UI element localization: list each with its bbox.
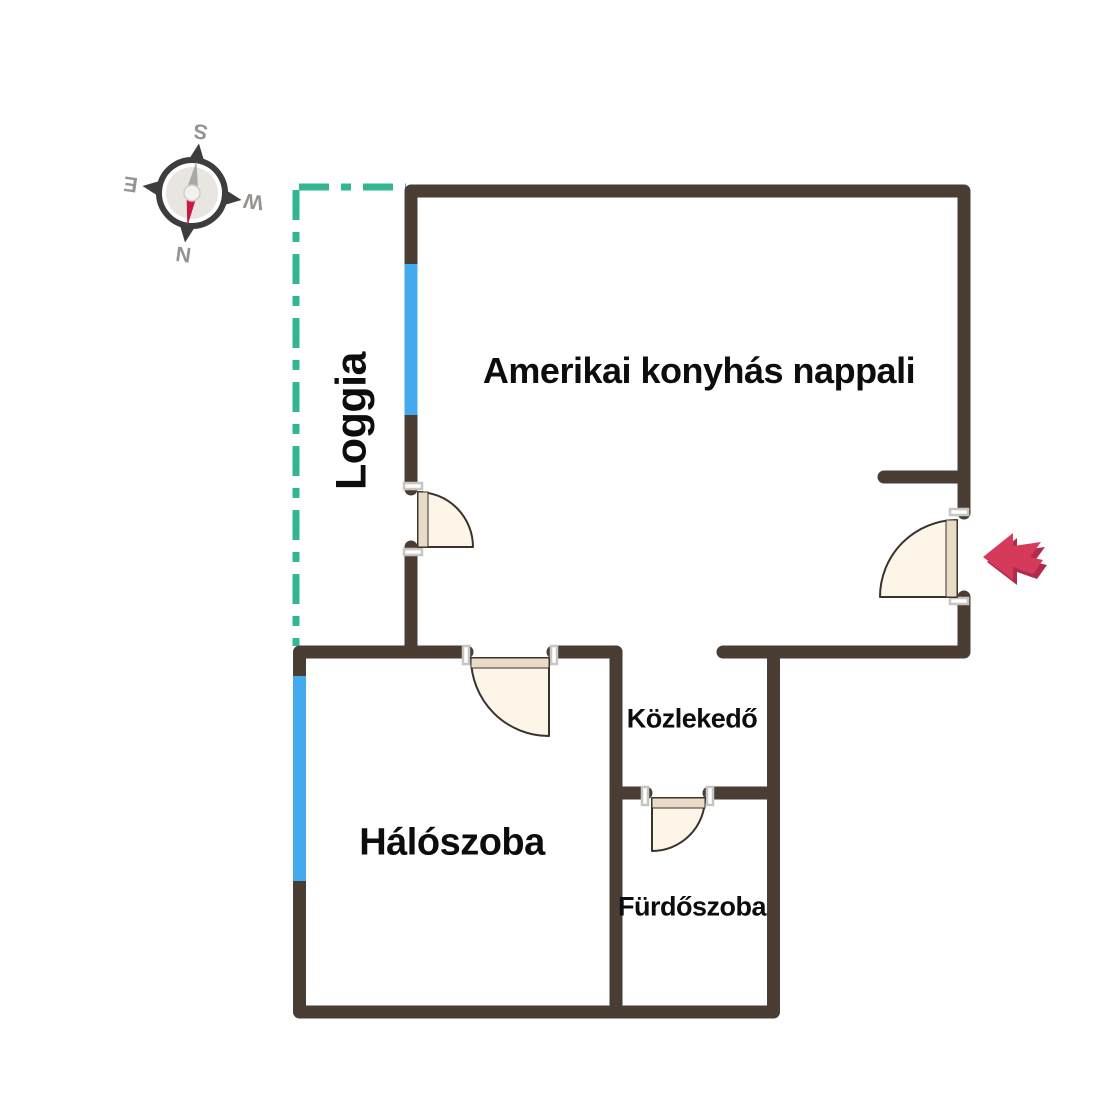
entrance-door xyxy=(880,520,957,597)
bedroom-top-wall-left xyxy=(300,652,468,678)
floor-plan: S W N E Amerikai konyhás nappali Loggia … xyxy=(0,0,1120,1100)
bathroom-door-leaf xyxy=(652,798,705,808)
loggia-door-jamb-top xyxy=(404,483,422,489)
door-jambs xyxy=(404,483,968,805)
loggia-door xyxy=(418,492,473,547)
compass-letter-s: S xyxy=(192,119,209,144)
bedroom-door-jamb-left xyxy=(463,646,469,664)
bathroom-door-jamb-right xyxy=(707,787,713,805)
loggia-door-leaf xyxy=(418,492,428,547)
bedroom-door-swing xyxy=(471,658,549,736)
bedroom-door-jamb-right xyxy=(551,646,557,664)
loggia-door-jamb-bottom xyxy=(404,549,422,555)
room-label-hall: Közlekedő xyxy=(627,704,758,735)
living-room-bottom-wall xyxy=(723,597,964,652)
walls xyxy=(300,191,965,1012)
floor-plan-drawing: S W N E xyxy=(0,0,1120,1100)
entrance-door-leaf xyxy=(946,520,957,597)
compass-letter-n: N xyxy=(174,241,192,266)
room-label-living: Amerikai konyhás nappali xyxy=(483,350,915,392)
compass-letter-e: E xyxy=(122,172,139,197)
compass-rose: S W N E xyxy=(114,110,274,275)
entrance-door-swing xyxy=(880,520,957,597)
bedroom-door-leaf xyxy=(471,658,549,668)
room-label-loggia: Loggia xyxy=(328,352,377,490)
bathroom-door-jamb-left xyxy=(642,787,648,805)
entrance-door-jamb-bottom xyxy=(950,598,968,604)
doors xyxy=(418,492,957,851)
bathroom-door xyxy=(652,798,705,851)
room-label-bathroom: Fürdőszoba xyxy=(618,892,766,923)
room-label-bedroom: Hálószoba xyxy=(359,822,545,865)
compass-letter-w: W xyxy=(242,188,265,214)
entrance-arrow xyxy=(983,533,1047,585)
entrance-door-jamb-top xyxy=(950,509,968,515)
bedroom-door xyxy=(471,658,549,736)
